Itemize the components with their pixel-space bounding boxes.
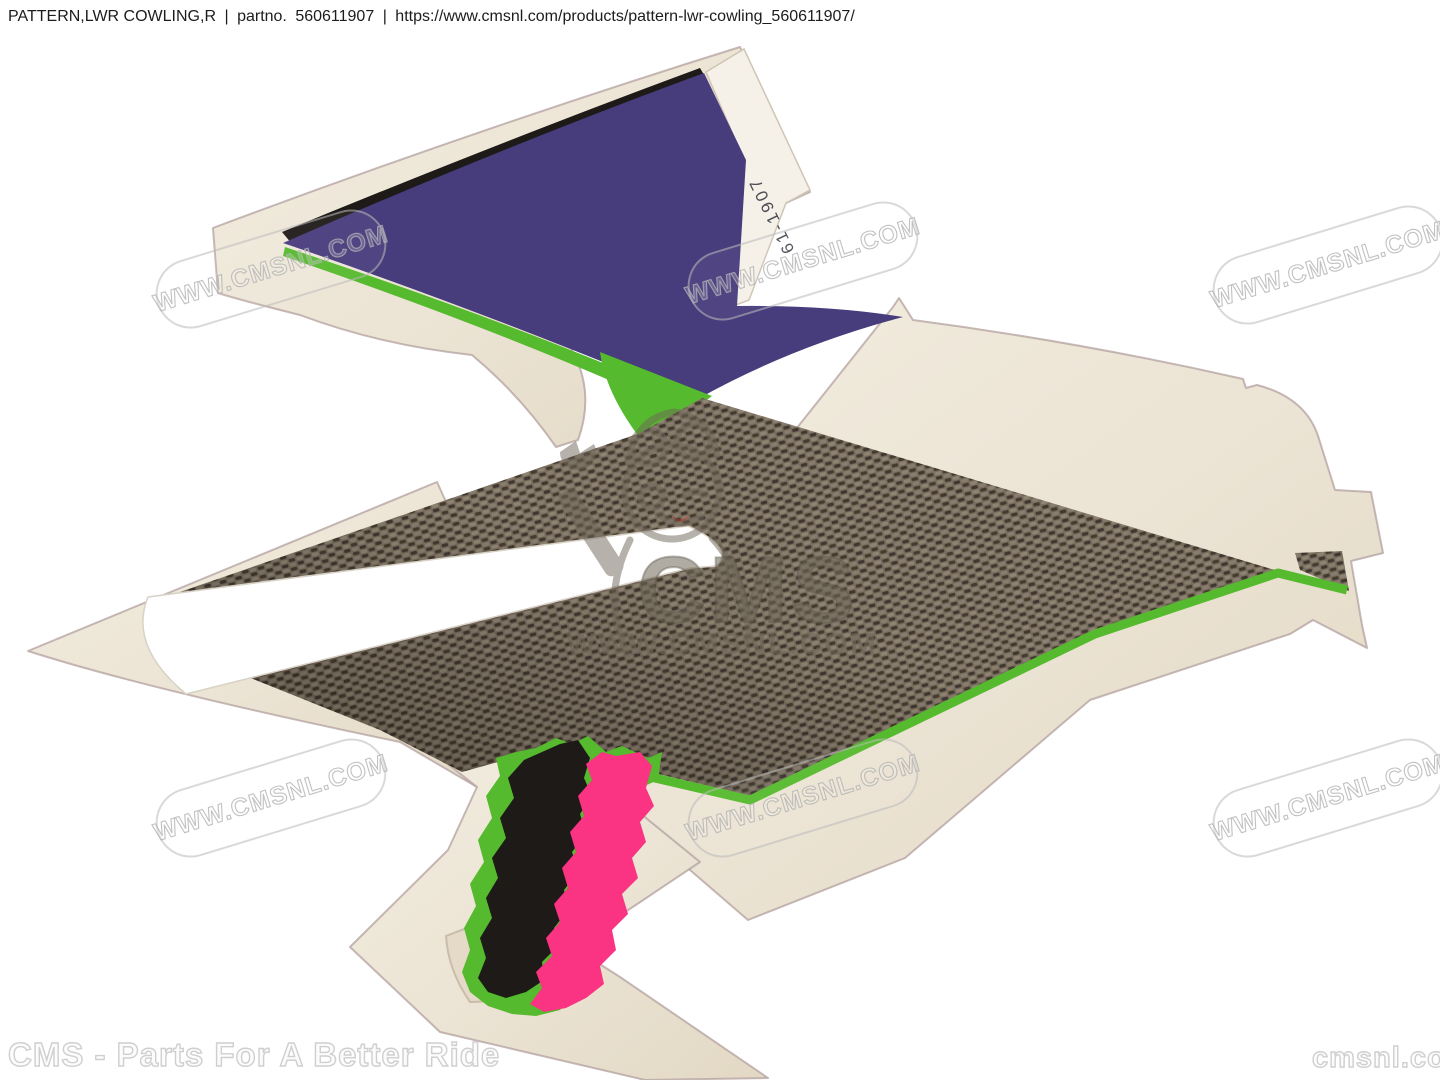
footer-site: cmsnl.com [1312,1042,1440,1075]
decal-photo: CMS WWW.CMSNL.COM [0,0,1440,1080]
footer-slogan: CMS - Parts For A Better Ride [8,1036,500,1074]
cms-logo-url: WWW.CMSNL.COM [566,626,878,661]
product-photo-page: PATTERN,LWR COWLING,R | partno. 56061190… [0,0,1440,1080]
